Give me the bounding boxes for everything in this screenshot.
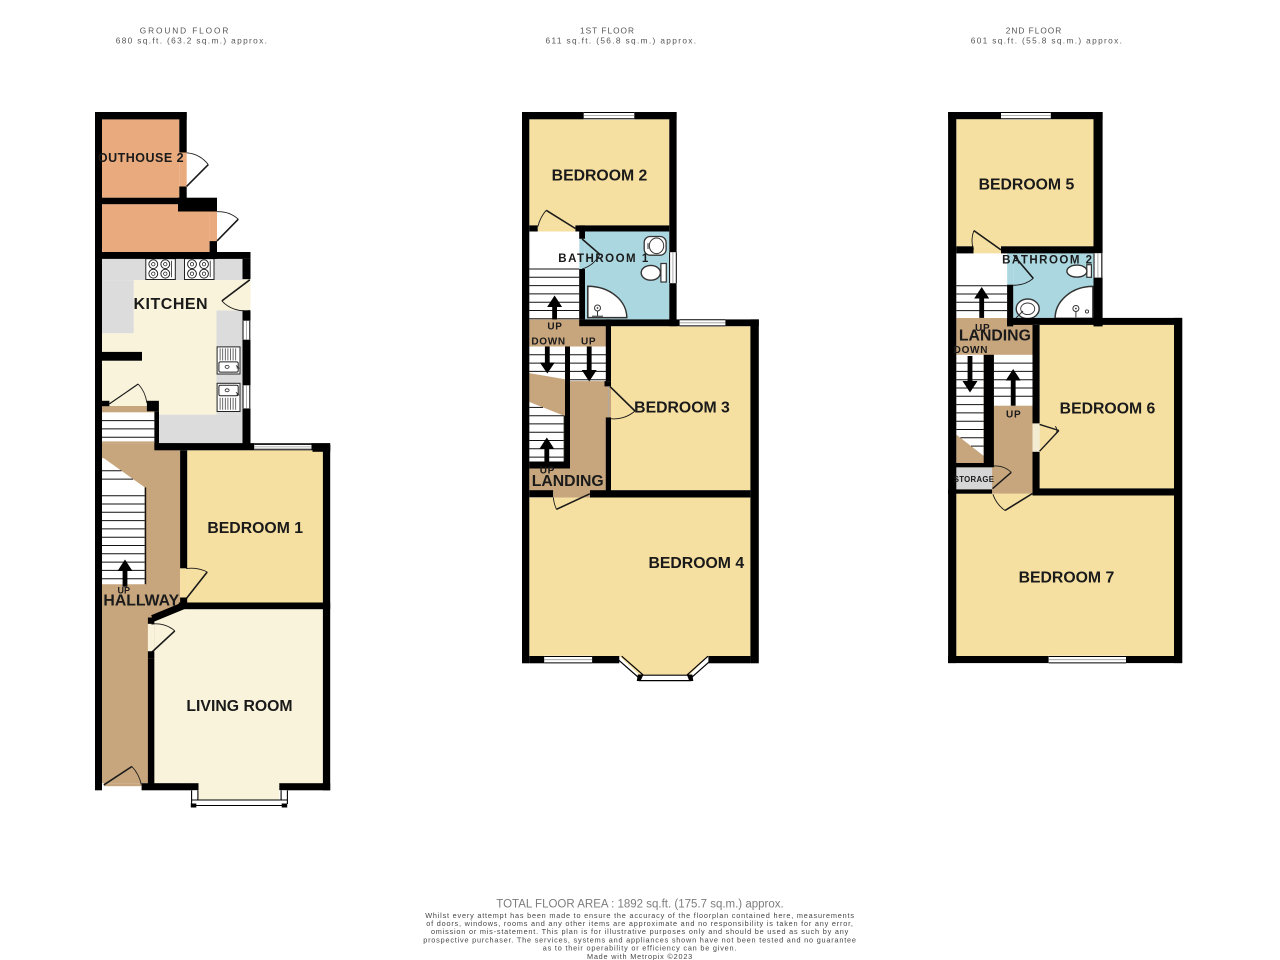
- svg-text:GROUND FLOOR: GROUND FLOOR: [140, 25, 231, 35]
- svg-text:Made with Metropix ©2023: Made with Metropix ©2023: [587, 952, 693, 960]
- svg-text:BEDROOM 6: BEDROOM 6: [1060, 401, 1156, 418]
- svg-text:DOWN: DOWN: [531, 337, 565, 348]
- svg-text:LIVING ROOM: LIVING ROOM: [186, 698, 292, 715]
- svg-text:UP: UP: [547, 322, 562, 333]
- svg-text:BATHROOM 1: BATHROOM 1: [558, 253, 649, 265]
- svg-text:BEDROOM 5: BEDROOM 5: [979, 177, 1075, 194]
- svg-text:TOTAL FLOOR AREA : 1892 sq.ft.: TOTAL FLOOR AREA : 1892 sq.ft. (175.7 sq…: [496, 898, 783, 910]
- svg-text:1ST FLOOR: 1ST FLOOR: [580, 25, 635, 35]
- svg-text:BEDROOM 4: BEDROOM 4: [648, 555, 744, 572]
- svg-text:UP: UP: [118, 586, 131, 596]
- svg-text:BEDROOM 3: BEDROOM 3: [634, 400, 730, 417]
- svg-text:LANDING: LANDING: [959, 327, 1031, 344]
- svg-text:2ND FLOOR: 2ND FLOOR: [1006, 25, 1062, 35]
- svg-text:UP: UP: [581, 337, 596, 348]
- svg-text:UP: UP: [975, 323, 990, 334]
- svg-text:DOWN: DOWN: [954, 345, 988, 356]
- svg-text:611 sq.ft. (56.8 sq.m.) approx: 611 sq.ft. (56.8 sq.m.) approx.: [546, 35, 698, 45]
- svg-text:UP: UP: [540, 466, 555, 477]
- svg-text:BATHROOM 2: BATHROOM 2: [1002, 255, 1093, 267]
- svg-text:BEDROOM 2: BEDROOM 2: [552, 167, 648, 184]
- svg-text:KITCHEN: KITCHEN: [133, 296, 208, 313]
- svg-text:OUTHOUSE 2: OUTHOUSE 2: [98, 151, 184, 165]
- svg-text:601 sq.ft. (55.8 sq.m.) approx: 601 sq.ft. (55.8 sq.m.) approx.: [971, 35, 1124, 45]
- svg-text:HALLWAY: HALLWAY: [103, 593, 179, 610]
- svg-text:BEDROOM 7: BEDROOM 7: [1019, 570, 1115, 587]
- svg-text:STORAGE: STORAGE: [954, 475, 995, 484]
- svg-text:UP: UP: [1006, 410, 1021, 421]
- svg-text:680 sq.ft. (63.2 sq.m.) approx: 680 sq.ft. (63.2 sq.m.) approx.: [116, 35, 269, 45]
- svg-text:BEDROOM 1: BEDROOM 1: [207, 520, 303, 537]
